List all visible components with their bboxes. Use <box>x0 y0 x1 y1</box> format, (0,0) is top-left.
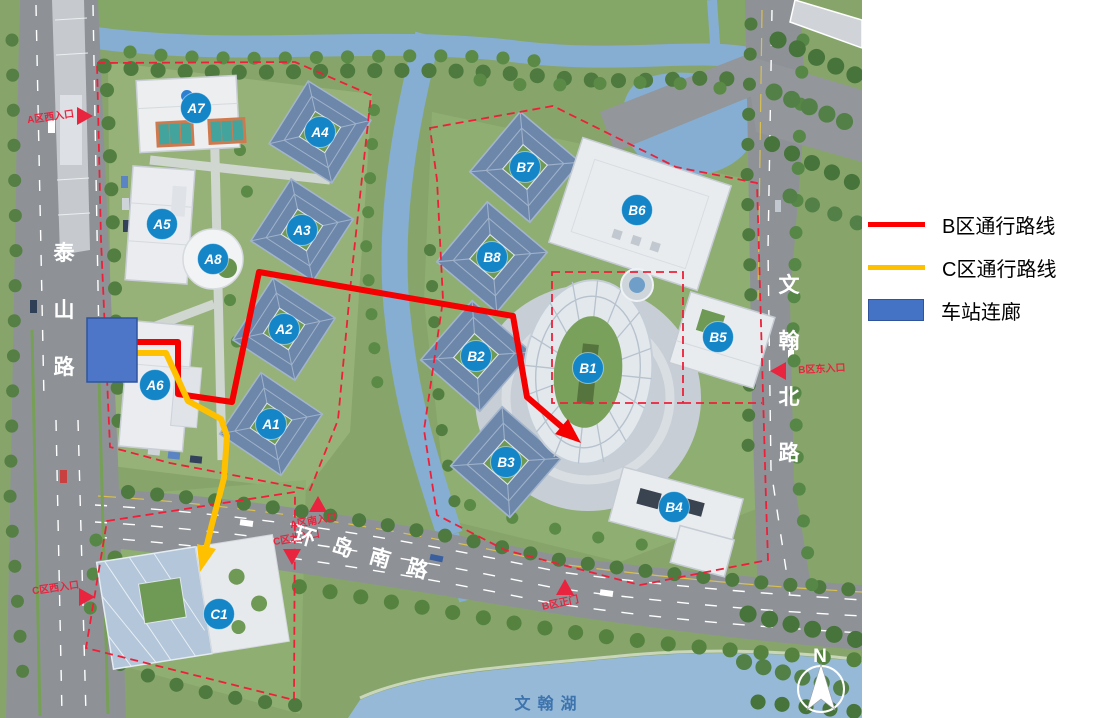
building-badge-b6: B6 <box>622 195 653 226</box>
station-corridor <box>87 318 137 382</box>
building-badge-a3: A3 <box>287 215 318 246</box>
svg-text:B1: B1 <box>579 361 596 376</box>
building-badge-b3: B3 <box>491 447 522 478</box>
ne-stream <box>712 0 716 58</box>
svg-text:A4: A4 <box>310 125 329 140</box>
svg-text:B6: B6 <box>628 203 646 218</box>
svg-text:A6: A6 <box>145 378 164 393</box>
legend: B区通行路线C区通行路线车站连廊 <box>868 212 1093 341</box>
building-badge-a7: A7 <box>181 93 212 124</box>
svg-text:A3: A3 <box>292 223 311 238</box>
building-badge-a4: A4 <box>305 117 336 148</box>
legend-item: 车站连廊 <box>868 298 1093 322</box>
rail-platform <box>60 95 82 165</box>
svg-text:B5: B5 <box>709 330 727 345</box>
building-badge-a5: A5 <box>147 209 178 240</box>
svg-text:B2: B2 <box>467 349 485 364</box>
building-badge-a8: A8 <box>198 244 229 275</box>
svg-text:A5: A5 <box>152 217 171 232</box>
legend-label: C区通行路线 <box>942 253 1056 282</box>
road-label-taishan: 泰山路 <box>53 242 76 379</box>
north-letter: N <box>813 646 827 667</box>
svg-text:B4: B4 <box>665 500 683 515</box>
legend-item: C区通行路线 <box>868 255 1093 279</box>
lake-label: 文翰湖 <box>514 694 583 713</box>
campus-aerial-map: A1A2A3A4A5A6A7A8B1B2B3B4B5B6B7B8C1 A区西入口… <box>0 0 862 718</box>
building-badge-a6: A6 <box>140 370 171 401</box>
svg-text:A7: A7 <box>186 101 206 116</box>
legend-label: B区通行路线 <box>942 210 1055 239</box>
building-badge-c1: C1 <box>204 599 235 630</box>
svg-text:A2: A2 <box>274 322 293 337</box>
svg-text:B8: B8 <box>483 250 501 265</box>
fountain <box>621 269 653 301</box>
legend-label: 车站连廊 <box>941 296 1021 325</box>
building-badge-b4: B4 <box>659 492 690 523</box>
building-badge-b5: B5 <box>703 322 734 353</box>
svg-text:B7: B7 <box>516 160 535 175</box>
building-badge-a2: A2 <box>269 314 300 345</box>
legend-swatch-line <box>868 265 925 270</box>
legend-item: B区通行路线 <box>868 212 1093 236</box>
legend-swatch-rect <box>868 299 924 321</box>
svg-text:A1: A1 <box>261 417 279 432</box>
building-badge-b1: B1 <box>573 353 604 384</box>
site-plan-figure: A1A2A3A4A5A6A7A8B1B2B3B4B5B6B7B8C1 A区西入口… <box>0 0 1099 718</box>
legend-swatch-line <box>868 222 925 227</box>
building-badge-b8: B8 <box>477 242 508 273</box>
svg-text:B3: B3 <box>497 455 515 470</box>
svg-text:C1: C1 <box>210 607 227 622</box>
building-badge-b2: B2 <box>461 341 492 372</box>
building-badge-a1: A1 <box>256 409 287 440</box>
svg-text:A8: A8 <box>203 252 222 267</box>
building-badge-b7: B7 <box>510 152 541 183</box>
